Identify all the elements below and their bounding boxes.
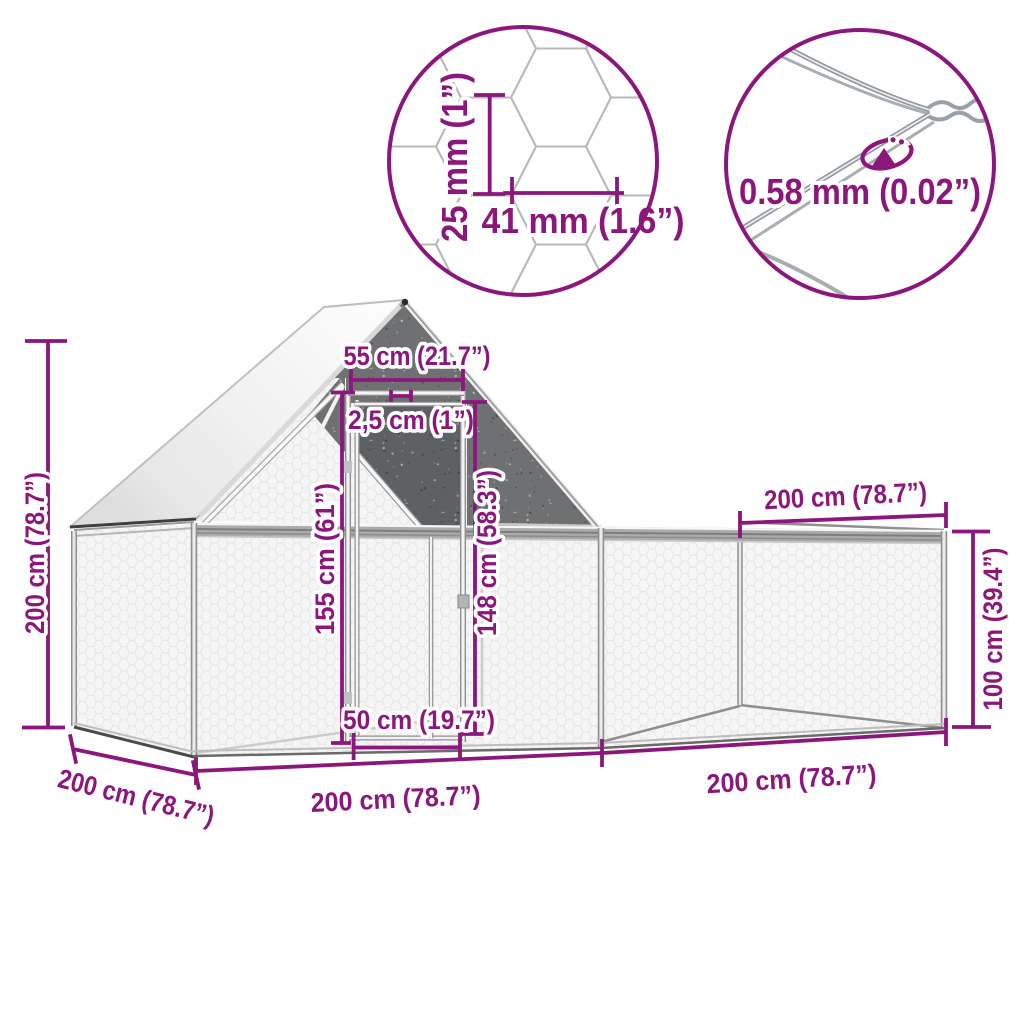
svg-text:2,5 cm (1”): 2,5 cm (1”) — [348, 405, 474, 435]
svg-text:0.58 mm (0.02”): 0.58 mm (0.02”) — [739, 171, 981, 212]
svg-text:148 cm (58.3”): 148 cm (58.3”) — [472, 470, 502, 636]
svg-text:155 cm (61”): 155 cm (61”) — [310, 483, 340, 635]
svg-text:55 cm (21.7”): 55 cm (21.7”) — [344, 341, 491, 371]
svg-text:50 cm (19.7”): 50 cm (19.7”) — [343, 705, 495, 735]
svg-text:100 cm (39.4”): 100 cm (39.4”) — [978, 548, 1008, 711]
svg-text:41 mm (1.6”): 41 mm (1.6”) — [482, 200, 685, 241]
svg-text:200 cm (78.7”): 200 cm (78.7”) — [20, 472, 50, 634]
svg-text:25 mm (1”): 25 mm (1”) — [434, 72, 475, 242]
